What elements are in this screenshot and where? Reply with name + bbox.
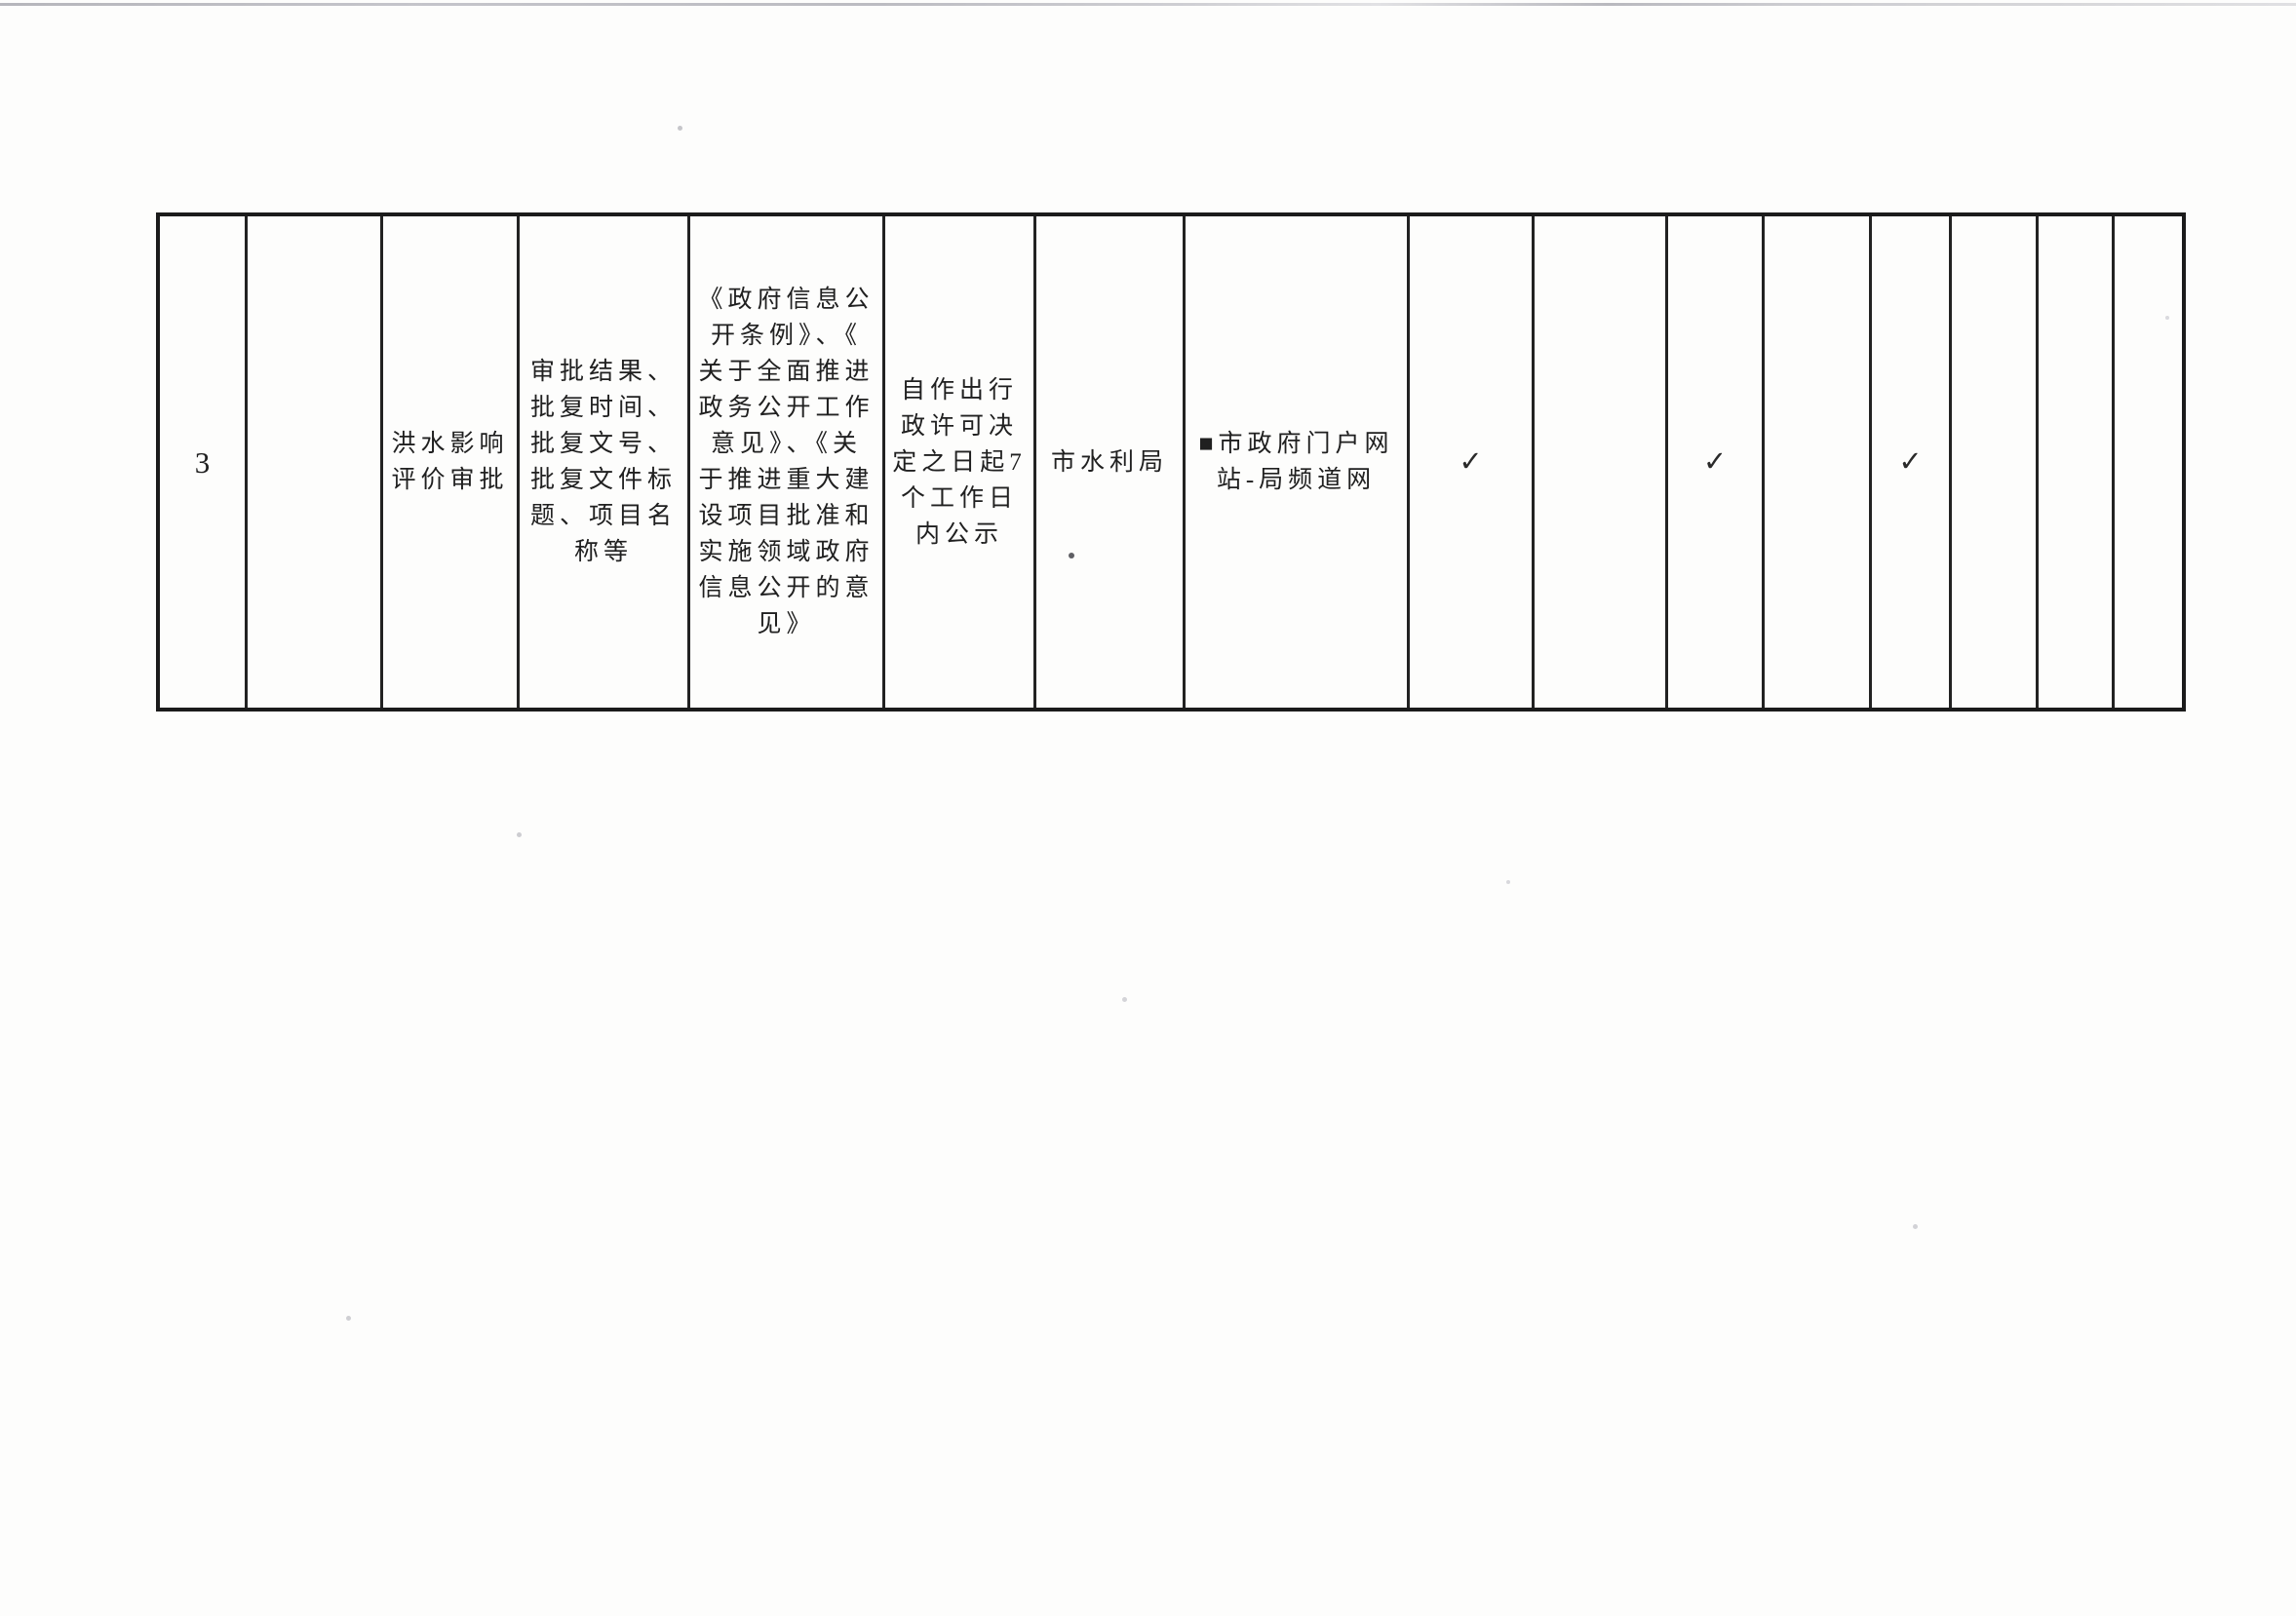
checkmark-icon: ✓ bbox=[1459, 444, 1482, 481]
cell-disclosure-basis: 《政府信息公 开条例》、《 关于全面推进 政务公开工作 意见》、《关 于推进重大… bbox=[690, 216, 885, 708]
cell-blank-4 bbox=[2039, 216, 2115, 708]
checkmark-icon: ✓ bbox=[1703, 444, 1727, 481]
item-name-text: 洪水影响 评价审批 bbox=[391, 426, 508, 498]
disclosure-deadline-text: 自作出行 政许可决 定之日起7 个工作日 内公示 bbox=[892, 372, 1027, 553]
cell-blank-1 bbox=[1535, 216, 1668, 708]
checkmark-icon: ✓ bbox=[1898, 444, 1922, 481]
scan-speck bbox=[1122, 997, 1127, 1002]
responsible-unit-text: 市水利局 bbox=[1051, 444, 1168, 481]
cell-checkmark-1: ✓ bbox=[1410, 216, 1535, 708]
scan-speck bbox=[517, 832, 522, 837]
disclosure-content-text: 审批结果、 批复时间、 批复文号、 批复文件标 题、项目名 称等 bbox=[530, 354, 677, 570]
cell-responsible-unit: 市水利局 bbox=[1036, 216, 1186, 708]
scan-edge-artifact bbox=[0, 3, 2296, 6]
scan-speck bbox=[1913, 1224, 1918, 1229]
cell-disclosure-channel: ■市政府门户网 站-局频道网 bbox=[1186, 216, 1410, 708]
cell-row-number: 3 bbox=[160, 216, 248, 708]
cell-checkmark-3: ✓ bbox=[1872, 216, 1952, 708]
cell-checkmark-2: ✓ bbox=[1668, 216, 1765, 708]
disclosure-table-row: 3 洪水影响 评价审批 审批结果、 批复时间、 批复文号、 批复文件标 题、项目… bbox=[156, 212, 2186, 712]
disclosure-basis-text: 《政府信息公 开条例》、《 关于全面推进 政务公开工作 意见》、《关 于推进重大… bbox=[698, 282, 874, 642]
cell-blank-5 bbox=[2115, 216, 2182, 708]
scanned-document-page: { "page": { "kind": "scanned document ta… bbox=[0, 0, 2296, 1616]
cell-disclosure-content: 审批结果、 批复时间、 批复文号、 批复文件标 题、项目名 称等 bbox=[520, 216, 690, 708]
scan-speck bbox=[678, 126, 682, 131]
cell-blank-3 bbox=[1952, 216, 2039, 708]
cell-item-name: 洪水影响 评价审批 bbox=[383, 216, 520, 708]
scan-speck bbox=[1069, 553, 1074, 558]
cell-blank-2 bbox=[1765, 216, 1872, 708]
disclosure-channel-text: ■市政府门户网 站-局频道网 bbox=[1198, 426, 1393, 498]
scan-speck bbox=[1506, 880, 1510, 884]
row-number-text: 3 bbox=[195, 444, 211, 481]
cell-blank-category bbox=[248, 216, 383, 708]
cell-disclosure-deadline: 自作出行 政许可决 定之日起7 个工作日 内公示 bbox=[885, 216, 1036, 708]
scan-speck bbox=[2165, 316, 2169, 320]
scan-speck bbox=[346, 1316, 351, 1321]
